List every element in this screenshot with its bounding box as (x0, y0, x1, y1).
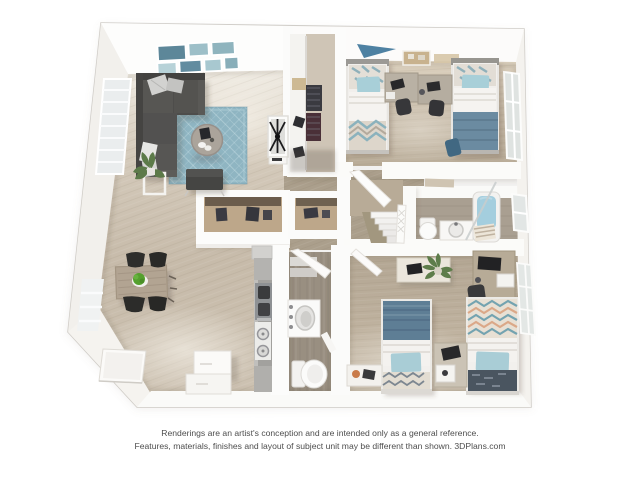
svg-text:Features, materials, finishes: Features, materials, finishes and layout… (135, 441, 506, 451)
svg-text:Renderings are an artist's con: Renderings are an artist's conception an… (161, 428, 478, 438)
